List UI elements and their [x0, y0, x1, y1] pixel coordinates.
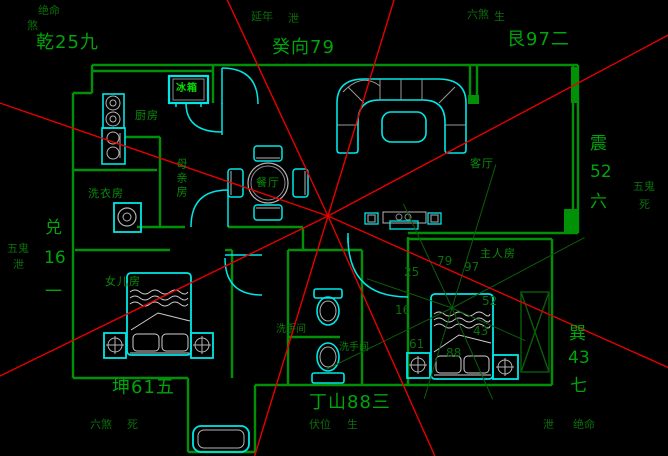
floor-plan-drawing: 2579971652614388 [0, 0, 668, 456]
label-mountain-bottom-right-num: 43 [568, 350, 590, 367]
tv-bench [383, 212, 426, 229]
red-ray [328, 14, 668, 216]
red-ray [146, 0, 328, 216]
label-mountain-top-left: 乾25九 [36, 34, 99, 52]
stove [103, 94, 124, 128]
sofa [337, 79, 466, 153]
rose-number: 25 [404, 265, 419, 279]
label-mountain-right-rank: 六 [590, 194, 607, 211]
washing-machine [114, 203, 141, 232]
label-mountain-top-mid: 癸向79 [272, 39, 335, 57]
label-daughter: 女儿房 [105, 276, 141, 287]
rose-number: 97 [464, 260, 479, 274]
label-star-top-mid: 延年 [251, 11, 273, 22]
label-mountain-right-num: 52 [590, 164, 612, 181]
kitchen-sink [102, 128, 125, 164]
label-star-left: 五鬼 [7, 243, 29, 254]
label-mountain-bottom-mid: 丁山88三 [309, 394, 391, 412]
label-mountain-left-rank: 一 [45, 284, 62, 301]
label-mountain-right-char: 震 [590, 136, 607, 153]
label-mountain-bottom-right-char: 巽 [569, 326, 586, 343]
speakers [365, 213, 441, 224]
label-element-bottom-mid: 生 [347, 419, 358, 430]
rose-ray [326, 308, 452, 369]
label-element-top-left: 煞 [27, 20, 38, 31]
label-star-top-right: 六煞 [467, 9, 489, 20]
label-living: 客厅 [470, 158, 494, 169]
rose-ray [452, 165, 496, 308]
rose-number: 52 [482, 294, 497, 308]
label-fridge: 冰箱 [176, 84, 198, 94]
label-star-bottom-right: 泄 [543, 419, 554, 430]
label-master: 主人房 [480, 248, 516, 259]
rose-number: 43 [473, 324, 488, 338]
rose-number: 88 [446, 346, 461, 360]
label-element-bottom-left: 死 [127, 419, 138, 430]
label-laundry: 洗衣房 [88, 188, 124, 199]
label-star-bottom-left: 六煞 [90, 419, 112, 430]
label-element-top-right: 生 [494, 11, 505, 22]
label-bath-upper: 洗手间 [276, 325, 306, 335]
label-kitchen: 厨房 [135, 110, 159, 121]
bathtub [193, 426, 249, 452]
toilet-upper [314, 289, 342, 325]
label-mountain-top-right: 艮97二 [507, 31, 570, 49]
cad-canvas[interactable]: 2579971652614388 绝命 煞 乾25九 延年 泄 癸向79 六煞 … [0, 0, 668, 456]
label-mountain-left-char: 兑 [45, 220, 62, 237]
label-element-right: 死 [639, 199, 650, 210]
label-mountain-bottom-left: 坤61五 [112, 379, 175, 397]
label-dining: 餐厅 [256, 177, 280, 188]
label-mother-room: 母亲房 [176, 158, 187, 200]
label-element-left: 泄 [13, 259, 24, 270]
label-mountain-bottom-right-rank: 七 [570, 378, 587, 395]
label-element-bottom-right: 绝命 [573, 419, 595, 430]
red-ray [328, 0, 454, 216]
rose-number: 16 [395, 303, 410, 317]
label-star-bottom-mid: 伏位 [309, 419, 331, 430]
label-element-top-mid: 泄 [288, 13, 299, 24]
rose-number: 61 [409, 337, 424, 351]
door-arcs [186, 68, 408, 297]
label-star-top-left: 绝命 [38, 5, 60, 16]
label-mountain-left-num: 16 [44, 250, 66, 267]
label-star-right: 五鬼 [633, 181, 655, 192]
label-bath-lower: 洗手间 [339, 343, 369, 353]
